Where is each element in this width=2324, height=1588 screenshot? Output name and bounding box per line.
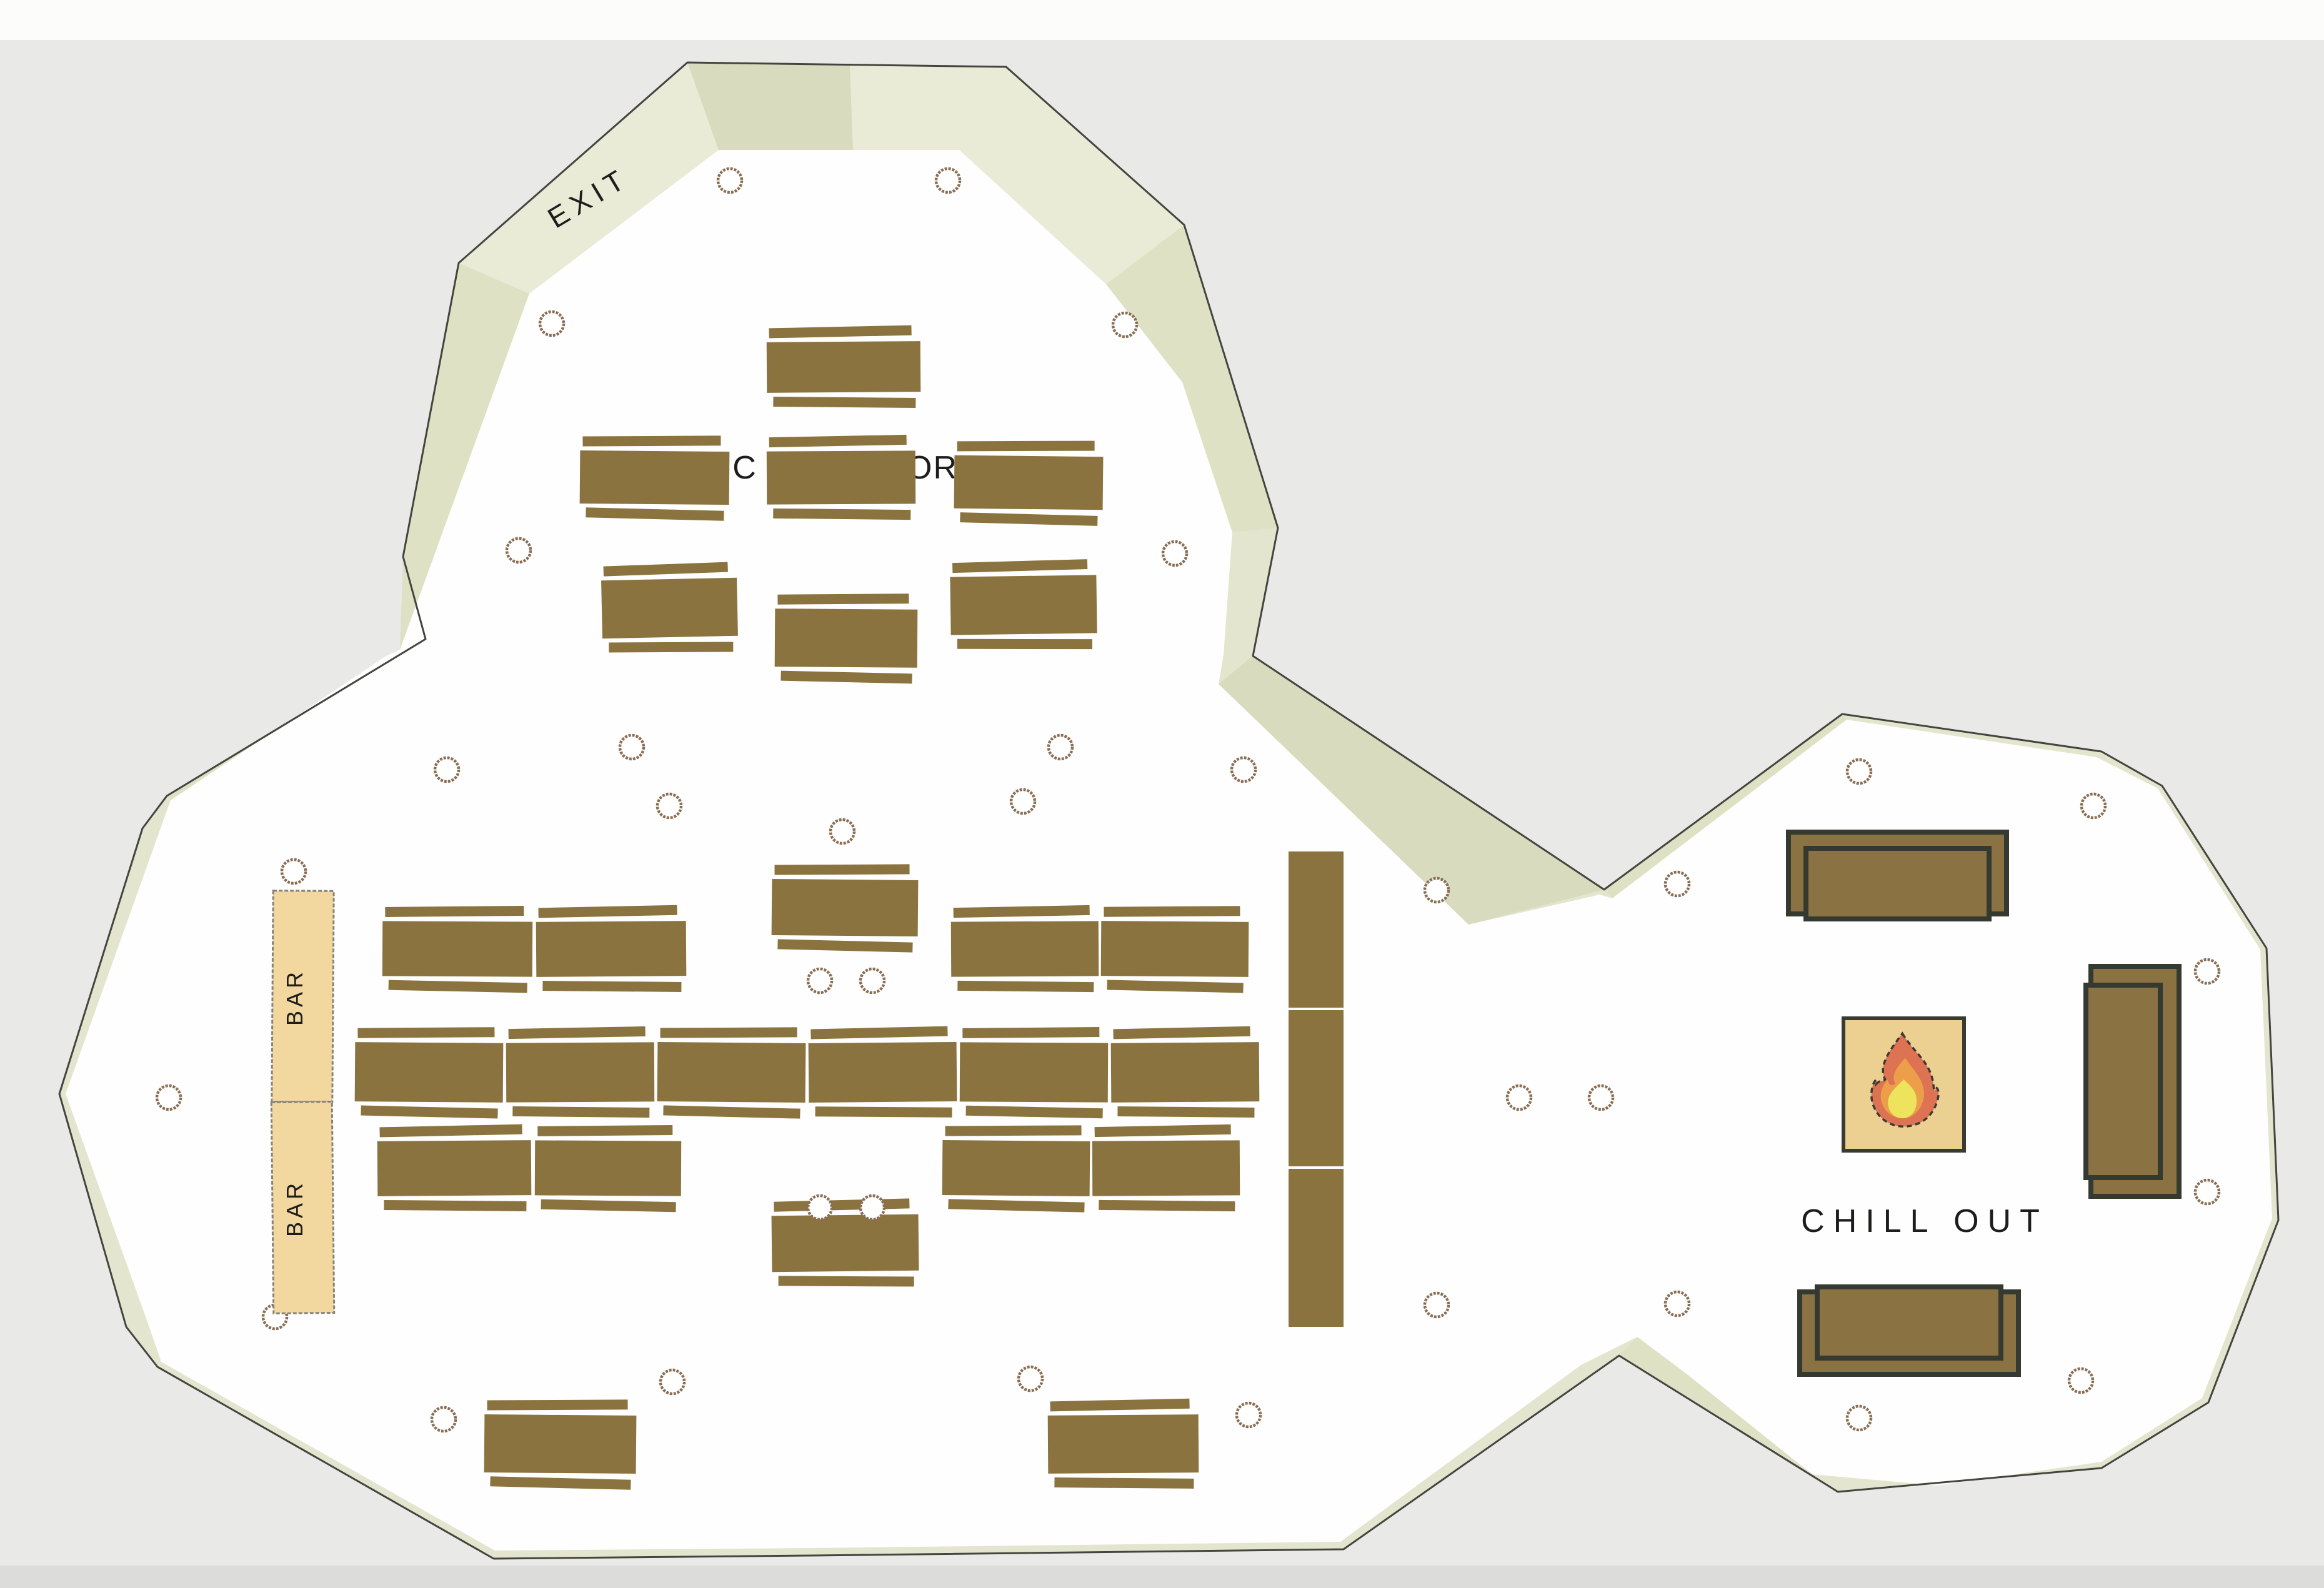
table-top[interactable] — [950, 575, 1097, 635]
support-pole[interactable] — [1163, 542, 1187, 565]
bench[interactable] — [773, 397, 915, 408]
bench[interactable] — [774, 864, 909, 875]
bench[interactable] — [661, 1027, 797, 1038]
top-strip — [0, 0, 2324, 40]
table-top[interactable] — [960, 1042, 1108, 1102]
table-top[interactable] — [942, 1140, 1090, 1196]
bench[interactable] — [512, 1106, 649, 1118]
bottom-strip — [0, 1566, 2324, 1588]
bench[interactable] — [779, 1276, 914, 1286]
support-pole[interactable] — [432, 1407, 456, 1431]
support-pole[interactable] — [1665, 872, 1689, 896]
support-pole[interactable] — [1237, 1403, 1260, 1427]
support-pole[interactable] — [1847, 1406, 1871, 1430]
support-pole[interactable] — [435, 758, 459, 782]
table-top[interactable] — [1289, 851, 1344, 1008]
support-pole[interactable] — [661, 1370, 684, 1394]
bench[interactable] — [945, 1125, 1081, 1136]
support-pole[interactable] — [1011, 790, 1035, 813]
bench[interactable] — [1117, 1106, 1254, 1118]
table-top[interactable] — [535, 1140, 681, 1196]
table-top[interactable] — [1048, 1414, 1199, 1474]
support-pole[interactable] — [507, 538, 531, 562]
support-pole[interactable] — [808, 1196, 832, 1219]
table-top[interactable] — [601, 578, 738, 639]
table-top[interactable] — [772, 879, 919, 936]
support-pole[interactable] — [1589, 1086, 1613, 1109]
sofa-seat — [2086, 985, 2160, 1178]
bench[interactable] — [357, 1027, 494, 1038]
support-pole[interactable] — [1507, 1086, 1531, 1109]
support-pole[interactable] — [860, 1196, 884, 1219]
bench[interactable] — [487, 1399, 628, 1410]
support-pole[interactable] — [1425, 878, 1449, 902]
support-pole[interactable] — [2069, 1369, 2093, 1392]
support-pole[interactable] — [1847, 760, 1871, 783]
table-top[interactable] — [809, 1042, 957, 1103]
table-top[interactable] — [951, 921, 1099, 976]
sofa-right[interactable] — [2086, 966, 2179, 1196]
table-top[interactable] — [580, 450, 730, 505]
support-pole[interactable] — [1049, 735, 1072, 759]
support-pole[interactable] — [860, 969, 884, 993]
bench[interactable] — [582, 435, 721, 446]
table-top[interactable] — [1111, 1042, 1260, 1103]
support-pole[interactable] — [830, 820, 854, 843]
table-top[interactable] — [506, 1042, 654, 1102]
venue-floor-plan: CORBARBAREXITCHILL OUT — [0, 0, 2324, 1588]
table-top[interactable] — [657, 1042, 806, 1103]
table-top[interactable] — [377, 1140, 532, 1196]
table-top[interactable] — [484, 1414, 637, 1474]
support-pole[interactable] — [657, 794, 681, 818]
support-pole[interactable] — [2195, 960, 2219, 983]
support-pole[interactable] — [1019, 1367, 1042, 1391]
support-pole[interactable] — [540, 312, 564, 335]
bench[interactable] — [1099, 1200, 1235, 1211]
bench[interactable] — [777, 593, 909, 604]
support-pole[interactable] — [808, 969, 832, 993]
table-top[interactable] — [767, 450, 915, 504]
support-pole[interactable] — [936, 169, 960, 192]
bench[interactable] — [542, 981, 681, 992]
bench[interactable] — [957, 639, 1092, 649]
table[interactable] — [1289, 851, 1344, 1008]
fire-pit[interactable] — [1843, 1018, 1964, 1151]
support-pole[interactable] — [1425, 1293, 1449, 1317]
sofa-seat — [1817, 1287, 2001, 1358]
table[interactable] — [1289, 1169, 1344, 1327]
bench[interactable] — [609, 642, 733, 652]
bench[interactable] — [1054, 1477, 1194, 1489]
sofa-bottom[interactable] — [1800, 1287, 2018, 1374]
table-top[interactable] — [536, 921, 687, 977]
bench[interactable] — [1104, 906, 1240, 917]
table-top[interactable] — [954, 455, 1104, 510]
sofa-top[interactable] — [1788, 832, 2007, 919]
support-pole[interactable] — [282, 860, 306, 883]
bench[interactable] — [815, 1106, 952, 1118]
support-pole[interactable] — [1113, 313, 1137, 337]
bench[interactable] — [962, 1027, 1099, 1038]
table-top[interactable] — [1289, 1169, 1344, 1327]
bench[interactable] — [957, 441, 1095, 452]
bench[interactable] — [957, 981, 1094, 992]
table-top[interactable] — [1101, 921, 1249, 977]
support-pole[interactable] — [157, 1086, 181, 1109]
table-top[interactable] — [772, 1214, 919, 1272]
bench[interactable] — [537, 1125, 672, 1136]
support-pole[interactable] — [1232, 758, 1255, 782]
support-pole[interactable] — [620, 735, 644, 759]
support-pole[interactable] — [1665, 1292, 1689, 1316]
table-top[interactable] — [355, 1042, 504, 1103]
support-pole[interactable] — [718, 169, 742, 192]
table-top[interactable] — [382, 921, 532, 976]
sofa-seat — [1806, 848, 1989, 919]
bench[interactable] — [773, 509, 910, 520]
support-pole[interactable] — [2082, 794, 2105, 818]
table-top[interactable] — [767, 341, 921, 393]
bar-label-top: BAR — [282, 968, 307, 1026]
chill-out-label: CHILL OUT — [1801, 1203, 2048, 1239]
support-pole[interactable] — [2195, 1180, 2219, 1204]
room-label-fragment-c: C — [732, 450, 757, 486]
table[interactable] — [1289, 1010, 1344, 1166]
bar-label-bottom: BAR — [282, 1179, 307, 1237]
table-top[interactable] — [775, 608, 918, 668]
table-top[interactable] — [1092, 1140, 1240, 1196]
bench[interactable] — [384, 1200, 526, 1211]
bench[interactable] — [385, 906, 524, 917]
table-top[interactable] — [1289, 1010, 1344, 1166]
